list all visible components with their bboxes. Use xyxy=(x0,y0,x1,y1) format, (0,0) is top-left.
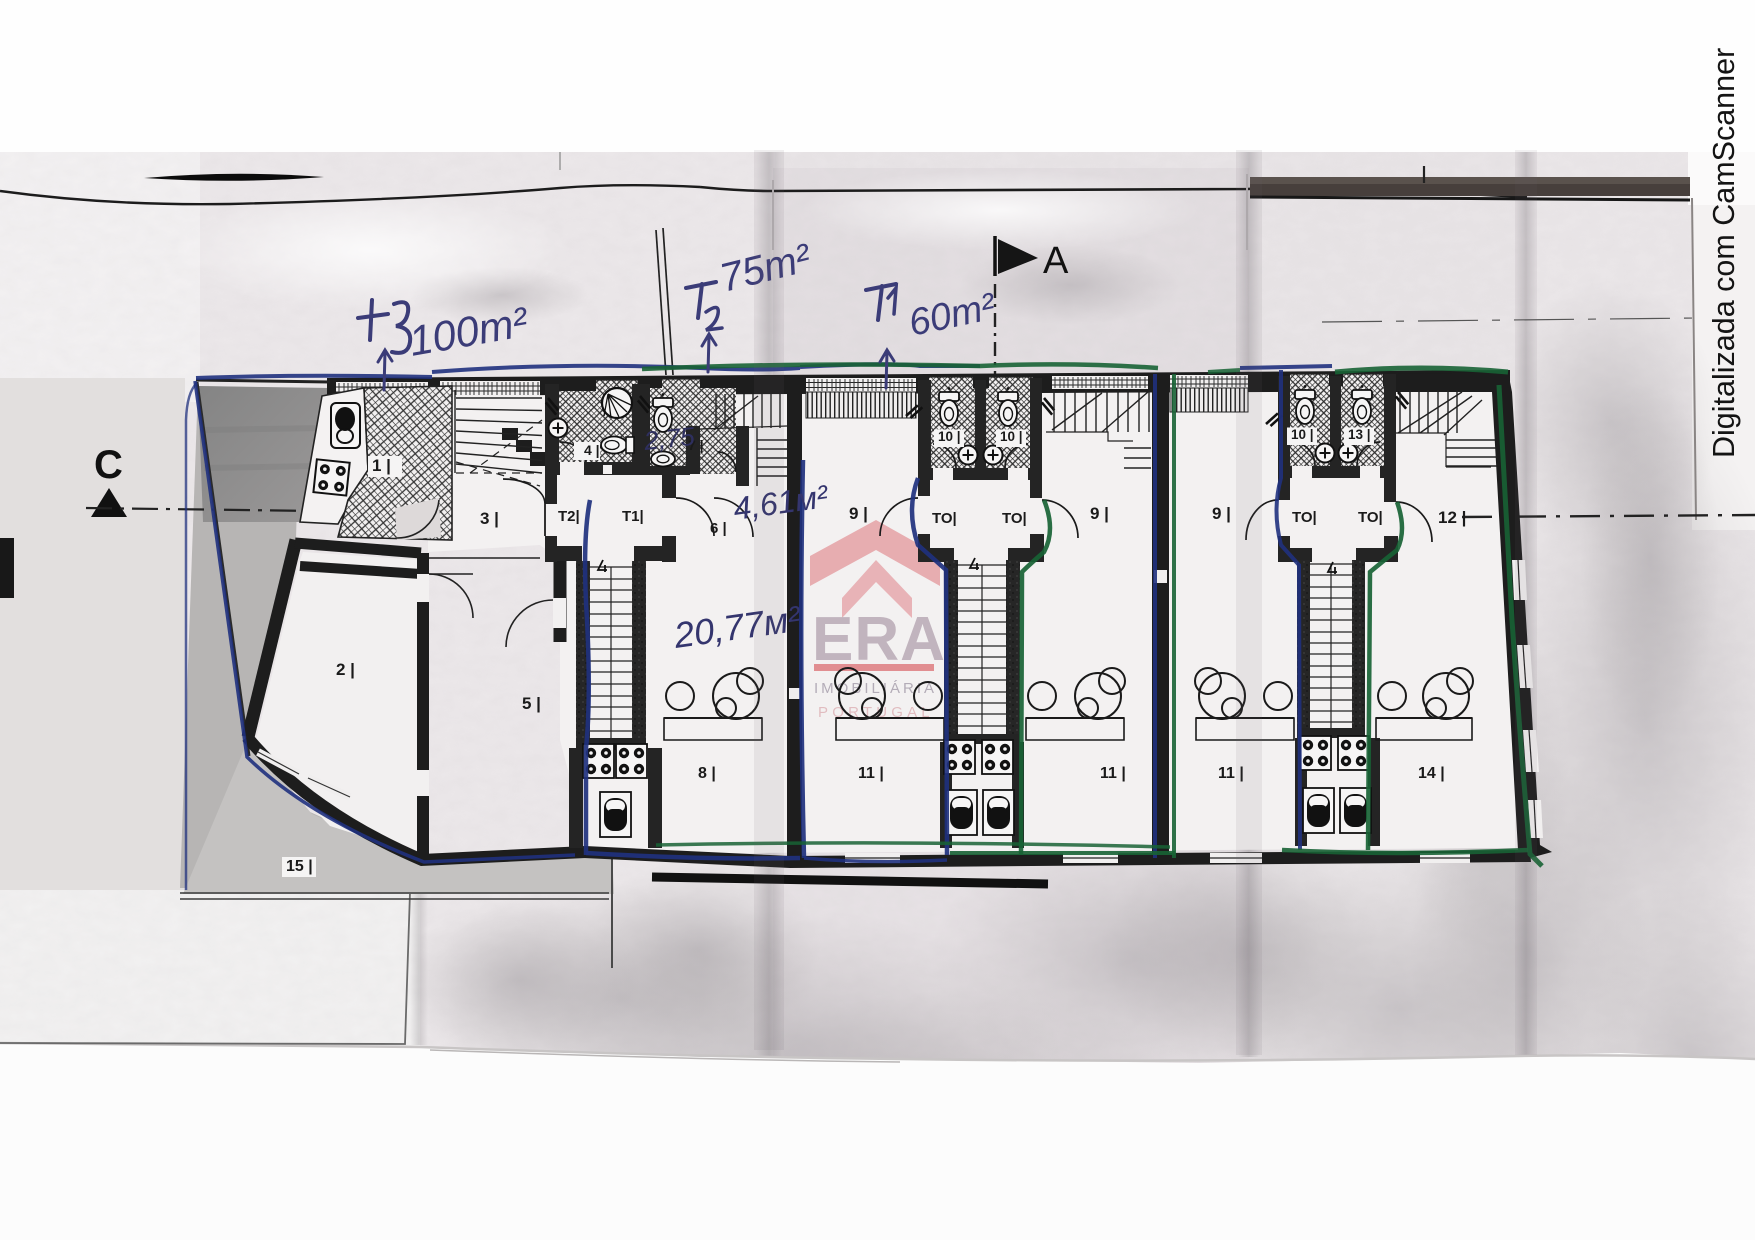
svg-text:TO|: TO| xyxy=(1002,510,1027,527)
svg-text:10 |: 10 | xyxy=(938,429,961,444)
svg-text:13 |: 13 | xyxy=(1348,427,1371,442)
svg-text:Digitalizada com CamScanner: Digitalizada com CamScanner xyxy=(1707,48,1741,458)
svg-text:A: A xyxy=(1043,240,1069,282)
svg-text:9 |: 9 | xyxy=(1212,504,1231,523)
svg-text:11 |: 11 | xyxy=(858,765,884,782)
svg-text:2,75: 2,75 xyxy=(641,421,696,456)
svg-text:4 |: 4 | xyxy=(584,442,600,458)
svg-text:9 |: 9 | xyxy=(1090,504,1109,523)
svg-text:T2|: T2| xyxy=(558,508,580,525)
svg-text:10 |: 10 | xyxy=(1291,427,1314,442)
svg-text:10 |: 10 | xyxy=(1000,429,1023,444)
svg-text:9 |: 9 | xyxy=(849,504,868,523)
svg-text:11 |: 11 | xyxy=(1100,765,1126,782)
svg-text:1 |: 1 | xyxy=(372,456,391,475)
svg-text:5 |: 5 | xyxy=(522,694,541,713)
svg-text:C: C xyxy=(94,443,123,487)
svg-text:TO|: TO| xyxy=(1358,509,1383,526)
svg-text:3 |: 3 | xyxy=(480,509,499,528)
svg-text:14 |: 14 | xyxy=(1418,765,1445,782)
svg-text:TO|: TO| xyxy=(932,510,957,527)
svg-text:2 |: 2 | xyxy=(336,660,355,679)
svg-text:TO|: TO| xyxy=(1292,509,1317,526)
svg-text:15 |: 15 | xyxy=(286,858,313,875)
svg-text:8 |: 8 | xyxy=(698,765,716,782)
svg-text:6 |: 6 | xyxy=(710,520,727,537)
svg-text:T1|: T1| xyxy=(622,508,644,525)
svg-text:ERA: ERA xyxy=(812,605,946,674)
svg-text:IMOBILIÁRIA: IMOBILIÁRIA xyxy=(814,680,937,697)
svg-text:12 |: 12 | xyxy=(1438,508,1466,527)
